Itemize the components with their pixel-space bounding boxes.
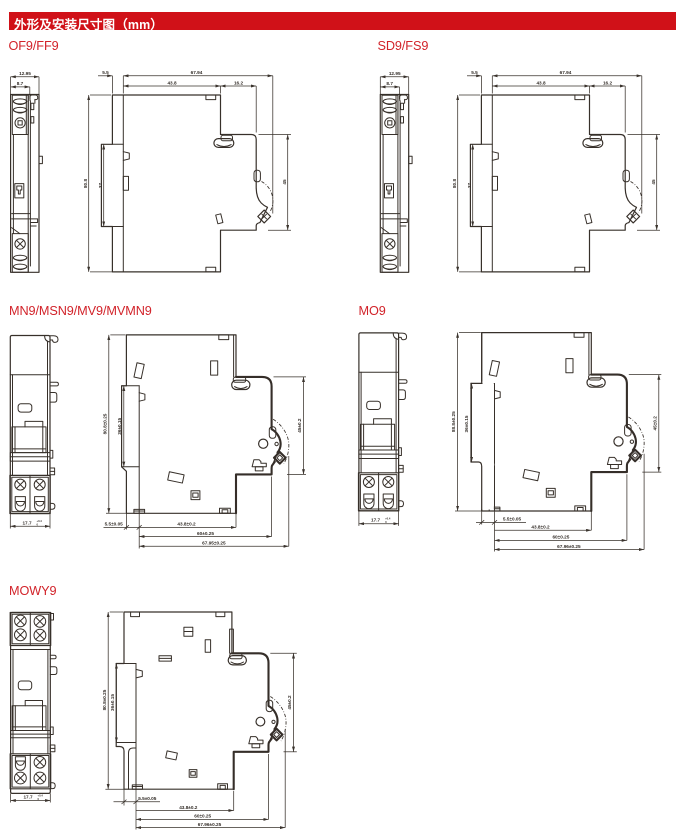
svg-text:80.8±0.25: 80.8±0.25 [102,689,107,710]
svg-text:60±0.25: 60±0.25 [552,535,569,540]
svg-text:36±0.15: 36±0.15 [464,415,469,432]
svg-text:60±0.25: 60±0.25 [197,531,214,536]
svg-text:36±0.15: 36±0.15 [117,417,122,434]
svg-text:67.96±0.25: 67.96±0.25 [198,822,222,827]
svg-text:17.7: 17.7 [23,795,33,800]
svg-text:45±0.2: 45±0.2 [653,416,658,431]
svg-text:+0.4: +0.4 [37,519,43,523]
svg-text:67.96±0.25: 67.96±0.25 [557,544,581,549]
svg-text:45±0.2: 45±0.2 [287,695,292,710]
svg-text:43.8±0.2: 43.8±0.2 [179,805,198,810]
svg-text:5.5±0.05: 5.5±0.05 [105,522,124,527]
svg-text:17.7: 17.7 [22,520,32,525]
svg-text:88.8±0.25: 88.8±0.25 [451,411,456,432]
svg-text:43.8±0.2: 43.8±0.2 [531,525,550,530]
svg-text:67.95±0.25: 67.95±0.25 [202,541,226,546]
svg-text:5.5±0.05: 5.5±0.05 [138,796,157,801]
svg-text:80.8±0.25: 80.8±0.25 [102,413,107,434]
svg-text:60±0.25: 60±0.25 [194,814,211,819]
svg-text:+0.4: +0.4 [38,794,44,798]
svg-text:43.8±0.2: 43.8±0.2 [177,522,196,527]
svg-text:36±0.15: 36±0.15 [110,694,115,711]
svg-text:45±0.2: 45±0.2 [297,418,302,433]
svg-text:5.5±0.05: 5.5±0.05 [503,517,522,522]
